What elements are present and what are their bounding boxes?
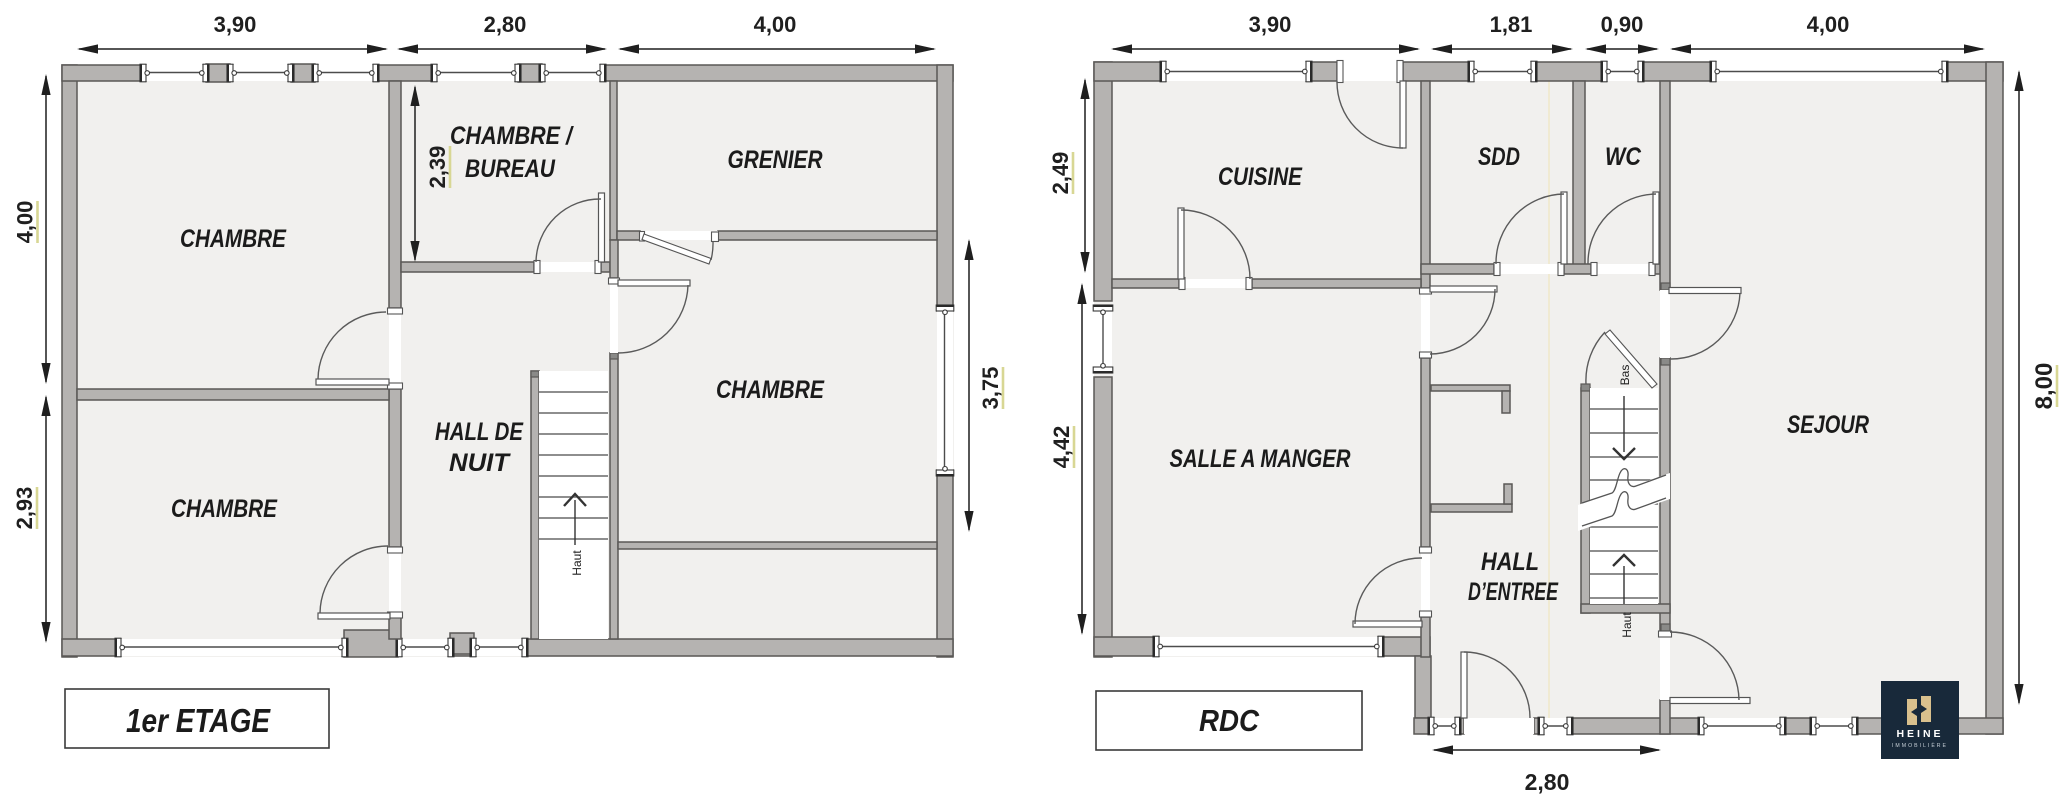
svg-text:2,93: 2,93 — [12, 487, 37, 530]
svg-text:0,90: 0,90 — [1601, 12, 1644, 37]
svg-text:3,75: 3,75 — [978, 367, 1003, 410]
svg-text:HALL: HALL — [1481, 548, 1539, 576]
svg-text:GRENIER: GRENIER — [728, 146, 823, 174]
svg-text:WC: WC — [1605, 143, 1642, 171]
svg-text:IMMOBILIÈRE: IMMOBILIÈRE — [1892, 742, 1948, 749]
svg-text:Haut: Haut — [1620, 612, 1634, 638]
svg-text:4,42: 4,42 — [1049, 426, 1074, 469]
svg-text:2,80: 2,80 — [1525, 769, 1570, 795]
svg-text:8,00: 8,00 — [2031, 363, 2058, 410]
svg-text:HEINE: HEINE — [1896, 728, 1943, 740]
svg-text:D’ENTREE: D’ENTREE — [1468, 578, 1559, 606]
svg-text:CHAMBRE /: CHAMBRE / — [450, 122, 575, 150]
svg-text:SDD: SDD — [1478, 143, 1520, 171]
svg-text:RDC: RDC — [1199, 703, 1260, 738]
svg-text:4,00: 4,00 — [13, 201, 38, 244]
svg-text:CHAMBRE: CHAMBRE — [716, 376, 825, 404]
svg-text:Bas: Bas — [1618, 365, 1632, 386]
svg-text:2,80: 2,80 — [484, 12, 527, 37]
svg-text:4,00: 4,00 — [1807, 12, 1850, 37]
svg-text:1,81: 1,81 — [1490, 12, 1533, 37]
svg-text:2,49: 2,49 — [1048, 152, 1073, 195]
svg-text:CHAMBRE: CHAMBRE — [171, 495, 278, 523]
svg-text:2,39: 2,39 — [425, 146, 450, 189]
svg-text:SALLE A MANGER: SALLE A MANGER — [1170, 445, 1351, 473]
svg-text:CHAMBRE: CHAMBRE — [180, 225, 287, 253]
svg-text:HALL DE: HALL DE — [435, 418, 524, 446]
svg-text:BUREAU: BUREAU — [465, 155, 556, 183]
svg-text:CUISINE: CUISINE — [1218, 163, 1303, 191]
svg-text:SEJOUR: SEJOUR — [1787, 411, 1869, 439]
svg-text:3,90: 3,90 — [214, 12, 257, 37]
svg-text:NUIT: NUIT — [449, 449, 512, 477]
svg-text:1er ETAGE: 1er ETAGE — [126, 702, 271, 739]
svg-text:Haut: Haut — [570, 550, 584, 576]
svg-text:4,00: 4,00 — [754, 12, 797, 37]
svg-text:3,90: 3,90 — [1249, 12, 1292, 37]
